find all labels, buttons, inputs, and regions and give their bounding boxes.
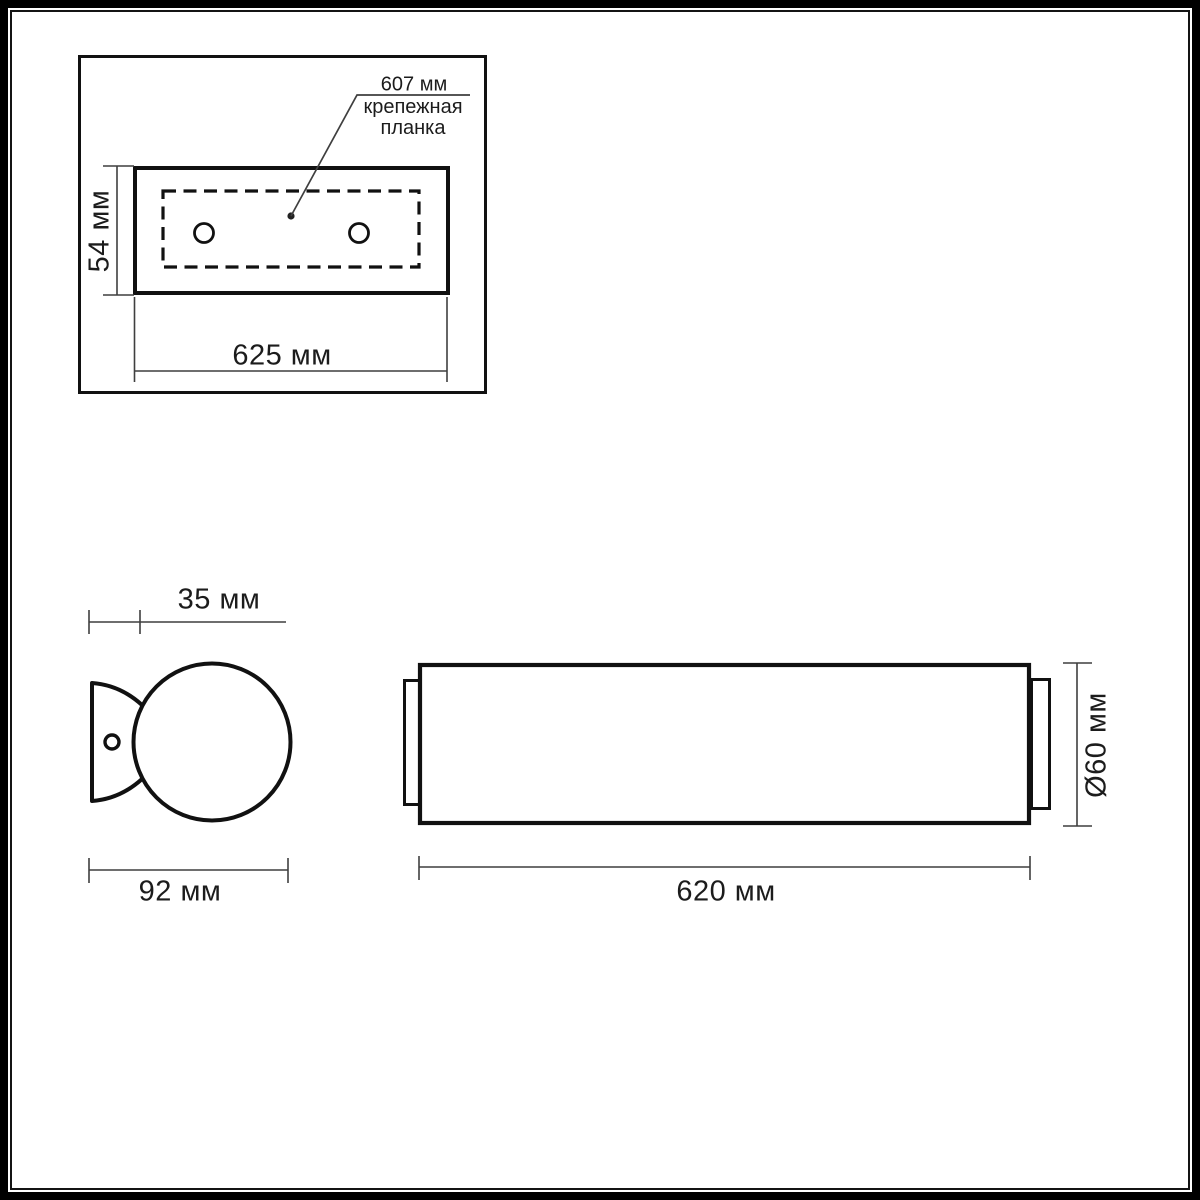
body-diameter-label: Ø60 мм <box>1081 692 1114 798</box>
mounting-bar-label-line1: крепежная <box>363 97 462 118</box>
plate-height-label: 54 мм <box>84 190 117 273</box>
glass-sphere-outline <box>134 664 291 821</box>
lamp-body-outline <box>420 665 1029 823</box>
plate-span-label: 607 мм <box>381 75 447 96</box>
end-cap-right <box>1032 680 1050 809</box>
side-view-lamp <box>89 610 291 883</box>
mounting-bar-label: крепежная планка <box>363 97 462 139</box>
screw-hole-right <box>350 224 369 243</box>
bracket-screw-hole <box>105 735 119 749</box>
front-view-lamp-body <box>405 663 1093 880</box>
bracket-width-label: 92 мм <box>139 876 222 909</box>
bracket-depth-label: 35 мм <box>178 584 261 617</box>
mounting-bar-label-line2: планка <box>363 118 462 139</box>
plate-width-label: 625 мм <box>232 340 331 373</box>
screw-hole-left <box>195 224 214 243</box>
body-length-label: 620 мм <box>676 876 775 909</box>
plate-outline <box>135 168 448 293</box>
end-cap-left <box>405 681 420 805</box>
